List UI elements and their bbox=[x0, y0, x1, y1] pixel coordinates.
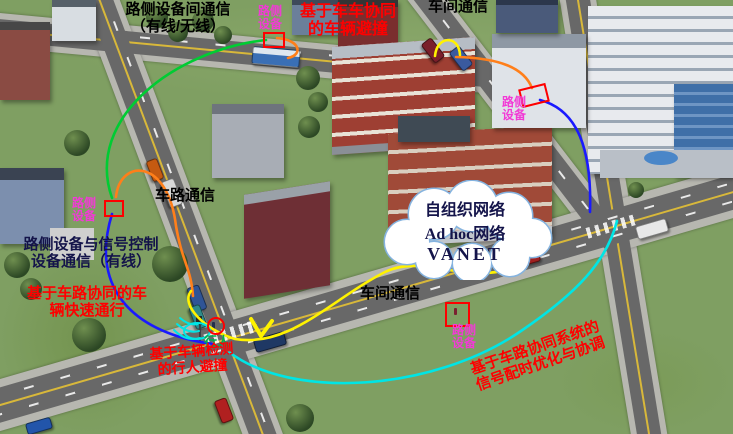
yellow-arc-car-to-car-top bbox=[435, 40, 460, 56]
label-v2r: 车路通信 bbox=[155, 188, 215, 205]
label-v2v-center: 车间通信 bbox=[360, 286, 420, 303]
label-line: 设备 bbox=[442, 337, 486, 350]
label-line: 路侧设备间通信 bbox=[88, 2, 268, 19]
cloud-text: 自组织网络 Ad hoc网络 VANET bbox=[385, 196, 545, 265]
vanet-scene: 自组织网络 Ad hoc网络 VANET 路侧设备间通信 （有线/无线） 基于车… bbox=[0, 0, 733, 434]
orange-curve-car-to-device bbox=[456, 57, 532, 88]
label-v2v-avoidance: 基于车车协同 的车辆避撞 bbox=[268, 3, 428, 39]
device-box-left bbox=[104, 200, 124, 217]
green-curve-roadside-to-roadside bbox=[107, 40, 266, 198]
label-line: 的车辆避撞 bbox=[268, 21, 428, 39]
annotation-curves bbox=[0, 0, 733, 434]
label-line: 设备 bbox=[248, 18, 292, 31]
label-fast-pass: 基于车路协同的车 辆快速通行 bbox=[12, 286, 162, 320]
label-roadside-device-top: 路侧 设备 bbox=[248, 5, 292, 32]
label-line: 设备 bbox=[492, 109, 536, 122]
label-roadside-device-left: 路侧 设备 bbox=[62, 197, 106, 224]
label-line: 设备通信（有线） bbox=[8, 254, 174, 271]
label-roadside-device-right: 路侧 设备 bbox=[492, 96, 536, 123]
cloud-line-adhoc-en: Ad hoc网络 bbox=[385, 220, 545, 244]
label-v2v-top: 车间通信 bbox=[428, 0, 488, 16]
pedestrian-circle bbox=[207, 317, 225, 335]
yellow-arrowhead bbox=[251, 319, 272, 336]
label-line: 路侧设备与信号控制 bbox=[8, 237, 174, 254]
label-line: （有线/无线） bbox=[88, 19, 268, 36]
label-line: 设备 bbox=[62, 210, 106, 223]
label-line: 辆快速通行 bbox=[12, 303, 162, 320]
cloud-line-vanet: VANET bbox=[385, 244, 545, 265]
label-line: 基于车车协同 bbox=[268, 3, 428, 21]
label-roadside-link: 路侧设备间通信 （有线/无线） bbox=[88, 2, 268, 36]
cloud-line-adhoc-cn: 自组织网络 bbox=[385, 196, 545, 220]
label-roadside-device-bottom: 路侧 设备 bbox=[442, 324, 486, 351]
label-line: 基于车路协同的车 bbox=[12, 286, 162, 303]
label-roadside-signal: 路侧设备与信号控制 设备通信（有线） bbox=[8, 237, 174, 271]
